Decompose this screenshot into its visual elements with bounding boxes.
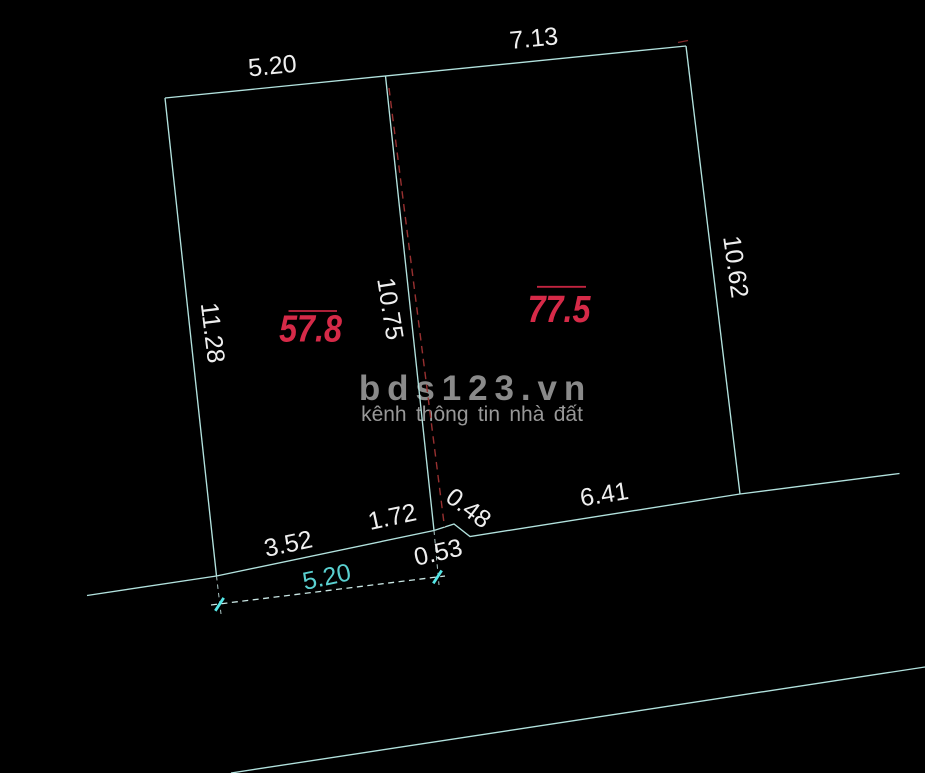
svg-text:77.5: 77.5	[528, 289, 592, 331]
svg-text:5.20: 5.20	[247, 50, 298, 83]
svg-text:kênh thông tin nhà đất: kênh thông tin nhà đất	[361, 403, 583, 426]
svg-text:57.8: 57.8	[279, 308, 342, 350]
svg-text:7.13: 7.13	[508, 22, 559, 55]
